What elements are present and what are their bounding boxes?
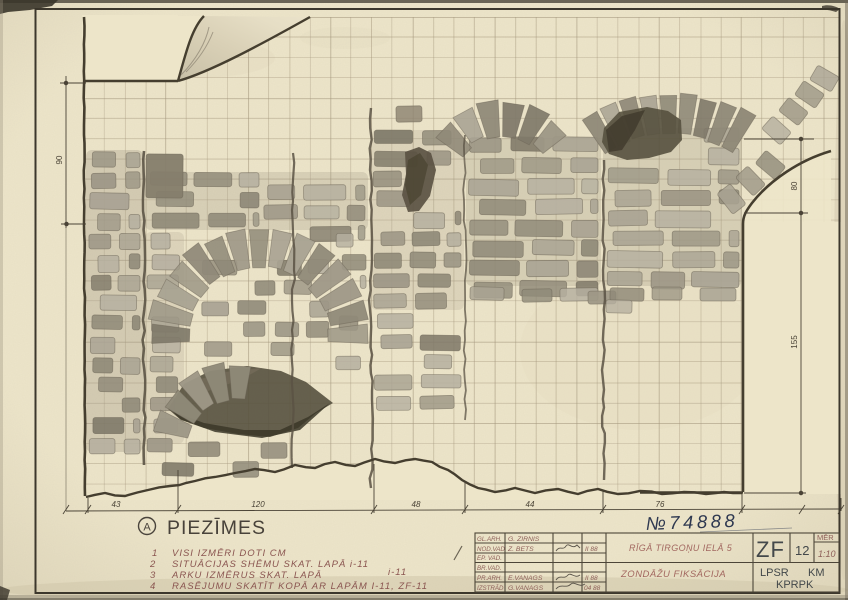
svg-text:ZF: ZF (756, 537, 785, 562)
svg-text:1: 1 (152, 548, 158, 559)
svg-text:KPRPK: KPRPK (776, 579, 814, 591)
svg-text:12: 12 (795, 543, 809, 558)
svg-text:A: A (143, 522, 151, 534)
svg-text:MĒR: MĒR (817, 533, 834, 542)
svg-text:G.VANAGS: G.VANAGS (508, 585, 544, 592)
svg-text:ZONDĀŽU FIKSĀCIJA: ZONDĀŽU FIKSĀCIJA (620, 569, 726, 580)
svg-text:PR.ARH.: PR.ARH. (477, 575, 502, 582)
svg-text:120: 120 (251, 500, 265, 509)
svg-text:155: 155 (790, 335, 799, 349)
svg-text:3: 3 (150, 570, 156, 581)
svg-text:ARKU IZMĒRUS SKAT. LAPĀ: ARKU IZMĒRUS SKAT. LAPĀ (171, 570, 322, 581)
svg-text:44: 44 (526, 500, 535, 509)
svg-text:G. ZIRNIS: G. ZIRNIS (508, 536, 540, 543)
svg-text:NOD.VAD: NOD.VAD (477, 546, 505, 553)
svg-text:04 88: 04 88 (584, 585, 601, 592)
svg-text:PIEZĪMES: PIEZĪMES (167, 516, 266, 539)
svg-text:i-11: i-11 (388, 567, 407, 578)
svg-text:43: 43 (112, 500, 121, 509)
svg-text:RASĒJUMU SKATĪT KOPĀ AR LAPĀM: RASĒJUMU SKATĪT KOPĀ AR LAPĀM I-11, ZF-1… (172, 581, 428, 592)
svg-text:BR.VAD.: BR.VAD. (477, 565, 501, 572)
svg-text:90: 90 (55, 155, 64, 164)
svg-text:80: 80 (790, 181, 799, 190)
svg-text:2: 2 (149, 559, 156, 570)
svg-text:RĪGĀ TIRGOŅU IELĀ 5: RĪGĀ TIRGOŅU IELĀ 5 (629, 543, 733, 553)
svg-text:1:10: 1:10 (818, 549, 836, 559)
svg-text:VISI IZMĒRI DOTI CM: VISI IZMĒRI DOTI CM (172, 548, 287, 559)
svg-text:Z. BETS: Z. BETS (507, 546, 534, 553)
svg-text:EP. VAD.: EP. VAD. (477, 555, 502, 562)
svg-text:KM: KM (808, 567, 825, 579)
svg-text:SITUĀCIJAS SHĒMU SKAT. LAPĀ i-: SITUĀCIJAS SHĒMU SKAT. LAPĀ i-11 (172, 559, 369, 570)
svg-text:LPSR: LPSR (760, 567, 789, 579)
svg-text:IZSTRĀD: IZSTRĀD (477, 585, 504, 592)
svg-text:76: 76 (656, 500, 665, 509)
svg-text:48: 48 (412, 500, 421, 509)
svg-text:E.VANAGS: E.VANAGS (508, 575, 543, 582)
svg-text:GL.ARH.: GL.ARH. (477, 536, 502, 543)
svg-text:№74888: №74888 (645, 510, 738, 534)
svg-text:II 88: II 88 (585, 575, 598, 582)
svg-text:II 88: II 88 (585, 546, 598, 553)
svg-text:4: 4 (150, 581, 156, 592)
